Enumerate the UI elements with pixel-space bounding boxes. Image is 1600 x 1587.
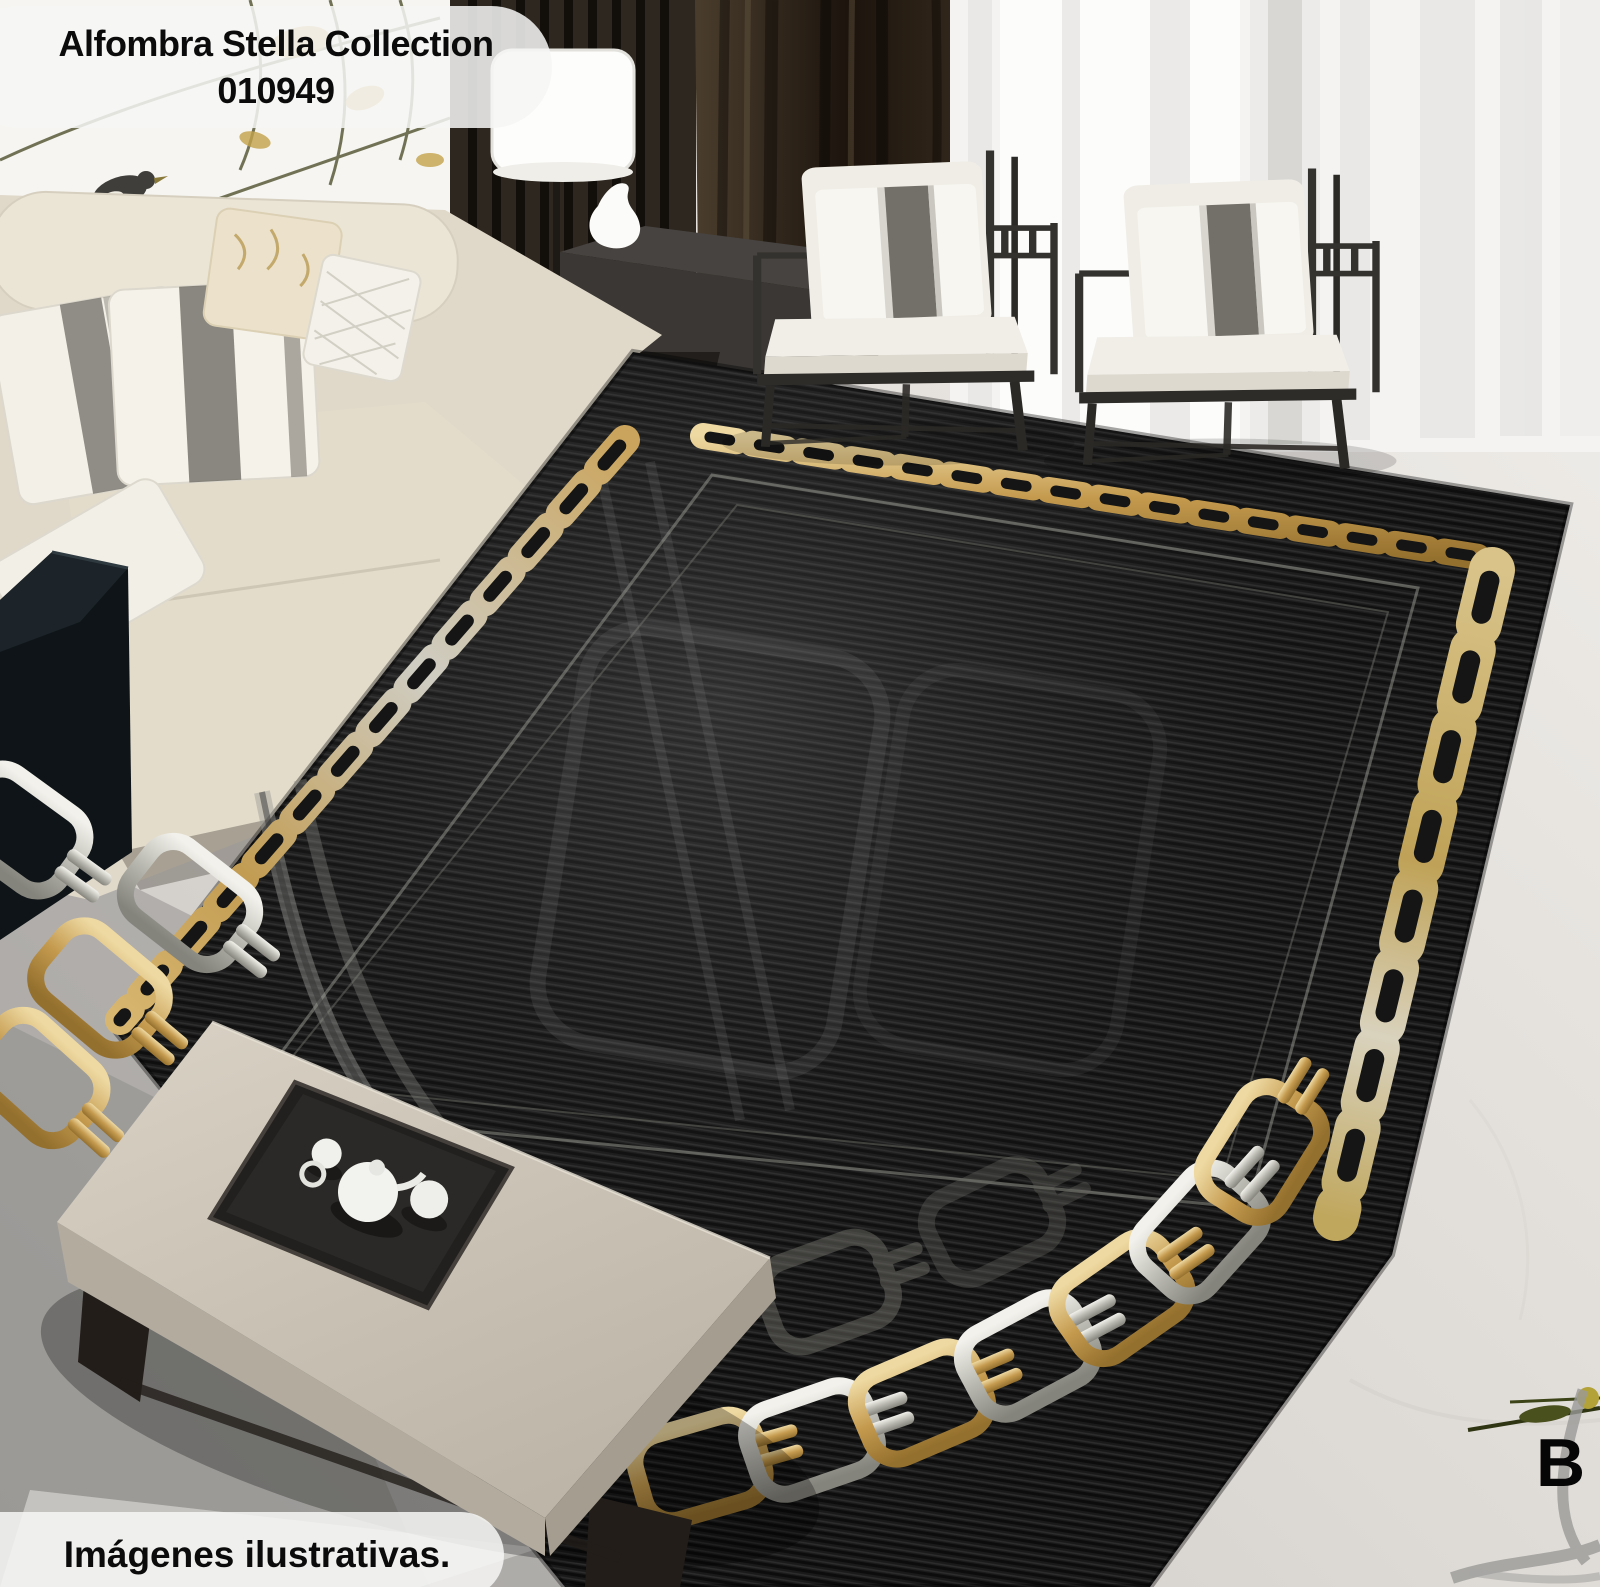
product-label-line2: 010949 <box>217 67 334 114</box>
product-label-line1: Alfombra Stella Collection <box>58 20 493 67</box>
product-label-badge: Alfombra Stella Collection 010949 <box>0 6 552 128</box>
disclaimer-badge: Imágenes ilustrativas. <box>0 1512 504 1587</box>
textured-white-pillow <box>301 253 422 383</box>
disclaimer-text: Imágenes ilustrativas. <box>64 1534 451 1576</box>
scene-illustration <box>0 0 1600 1587</box>
watermark-letter: B <box>1536 1424 1585 1502</box>
product-photo-stage: Alfombra Stella Collection 010949 Imágen… <box>0 0 1600 1587</box>
